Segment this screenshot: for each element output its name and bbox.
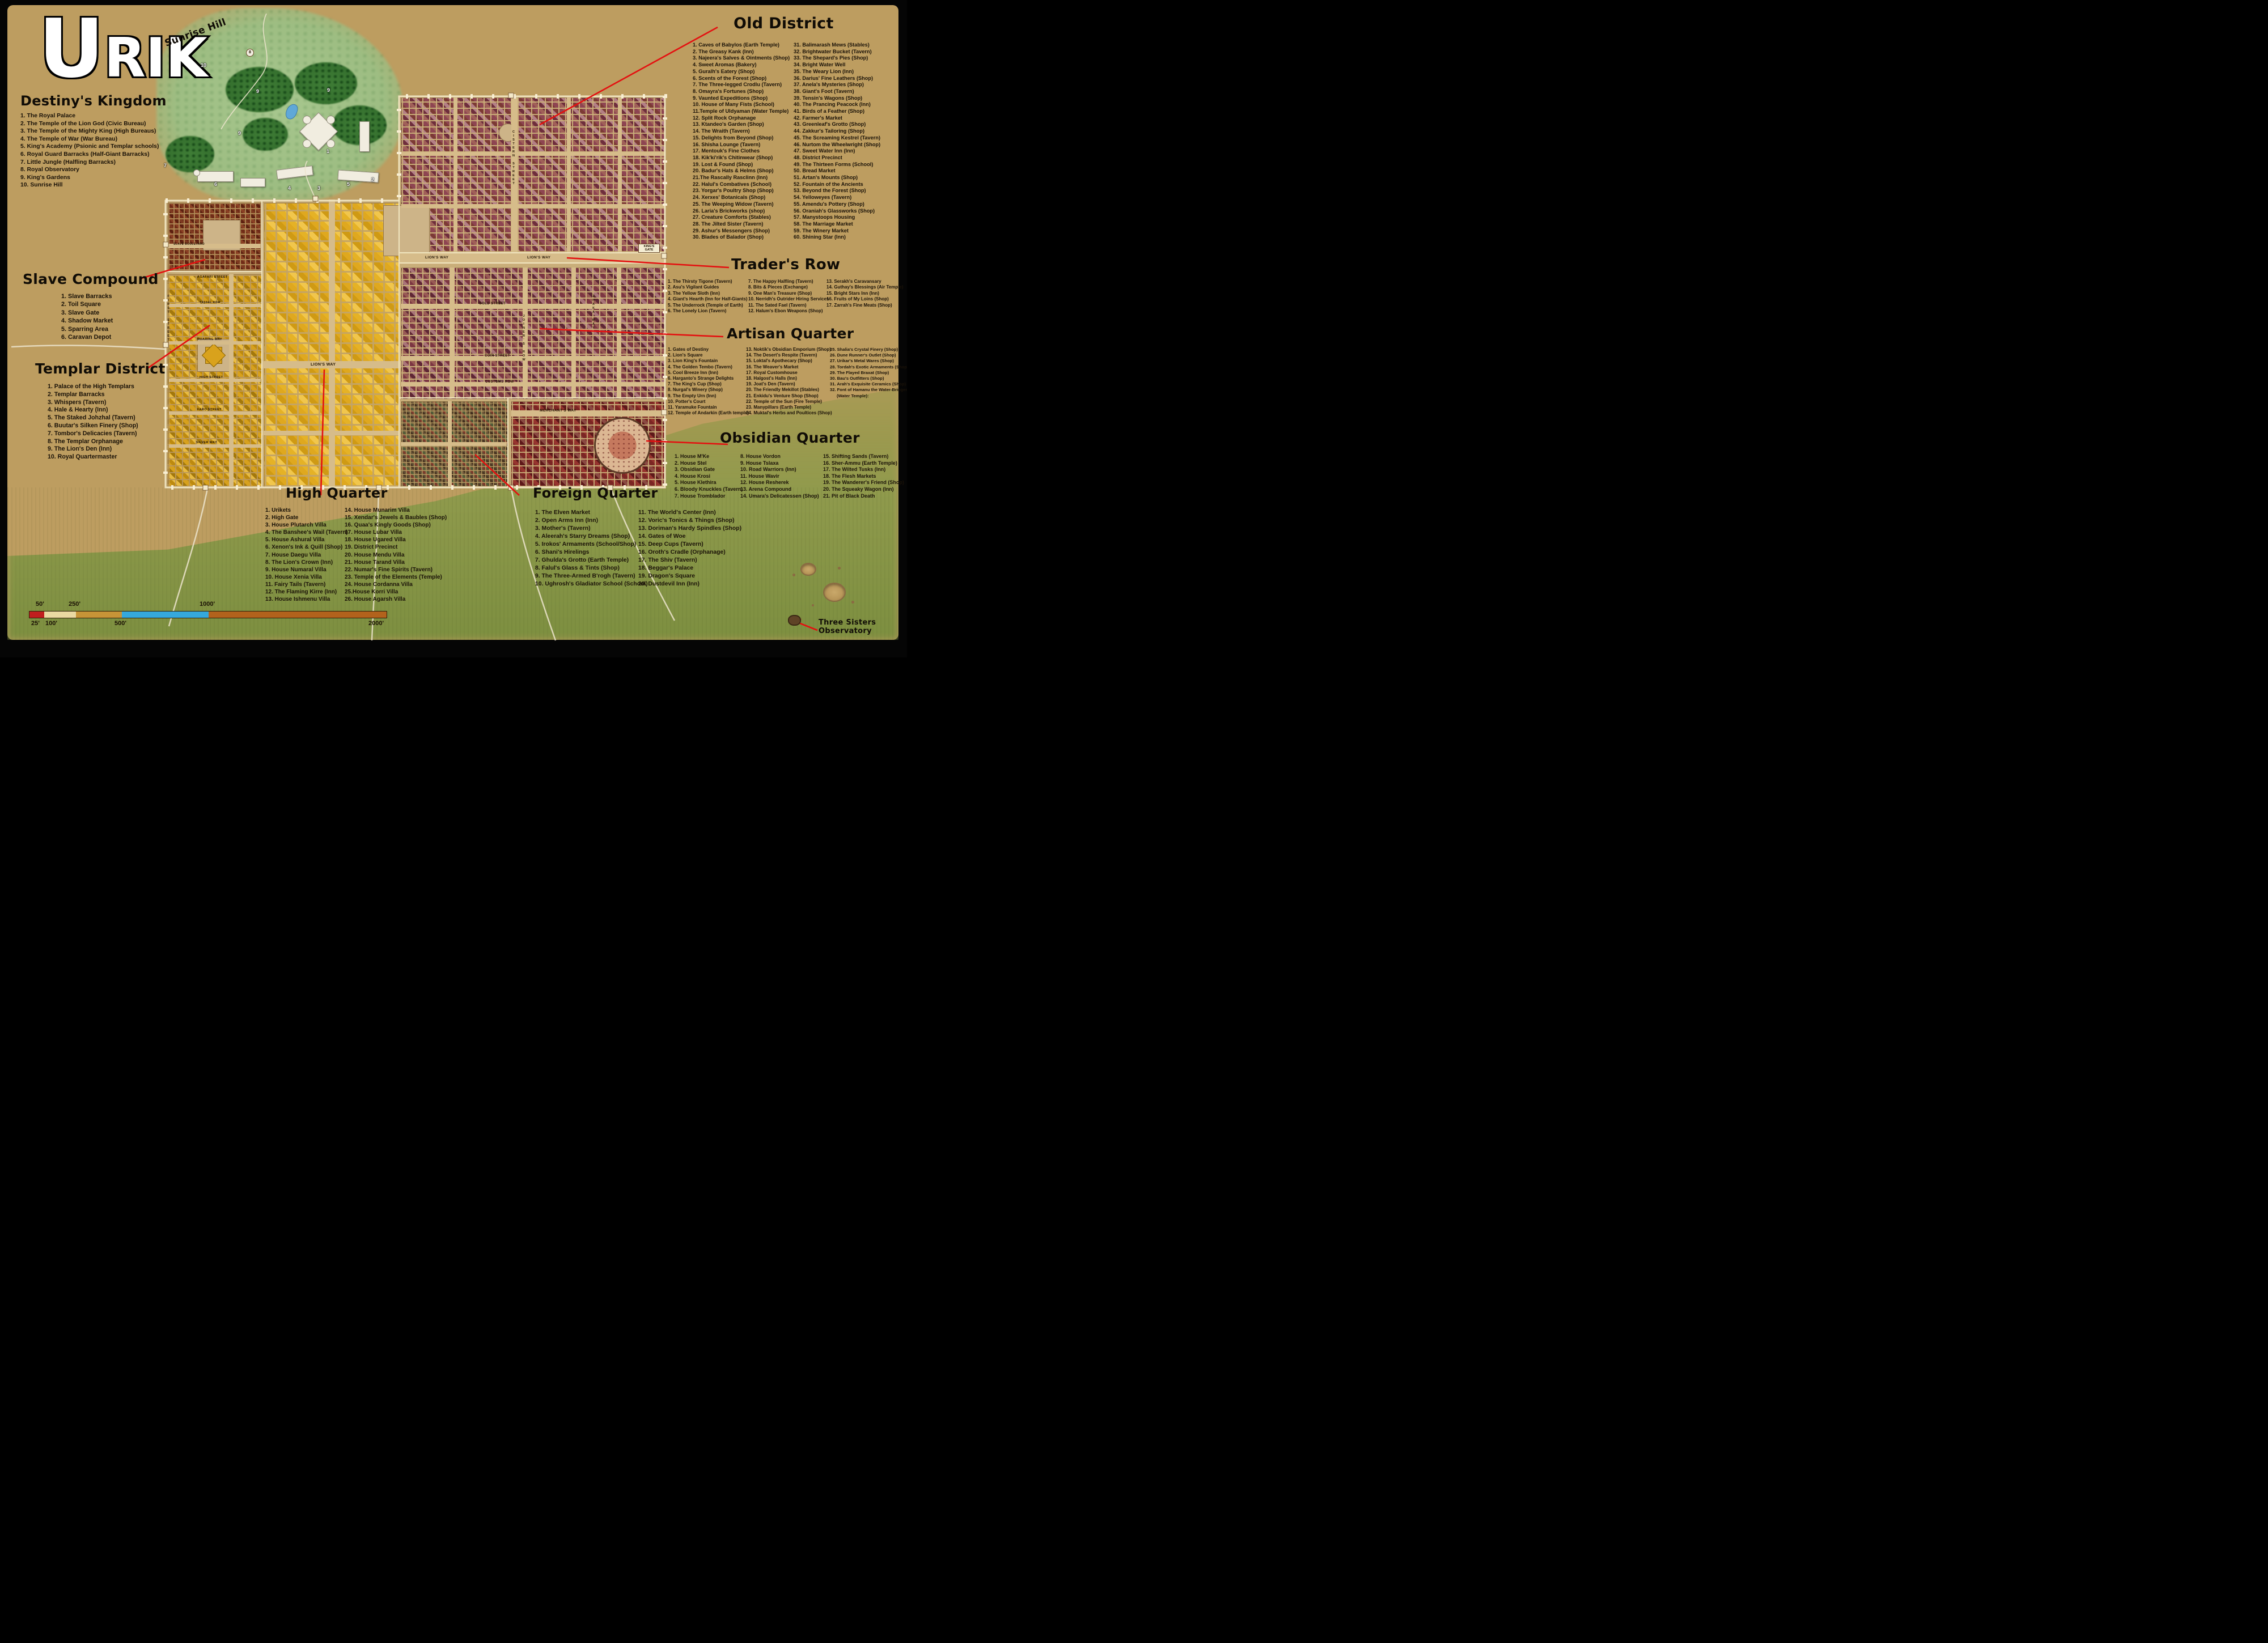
legend-item: 17. House Lubar Villa	[345, 529, 447, 536]
legend-item: 10. Road Warriors (Inn)	[740, 466, 819, 473]
legend-item: 22. Halul's Combatives (School)	[693, 181, 790, 188]
legend-item: 10. Nerridh's Outrider Hiring Services	[748, 296, 829, 302]
barracks-tower	[193, 169, 200, 176]
legend-item: 11.Temple of Uldyaman (Water Temple)	[693, 108, 790, 115]
legend-item: 12. Temple of Andarkin (Earth temple)	[668, 410, 749, 416]
legend-item: 20. The Friendly Mekillot (Stables)	[746, 387, 832, 393]
legend-item: 5. Irokos' Armaments (School/Shop)	[535, 541, 648, 549]
legend-item: 8. The Lion's Crown (Inn)	[265, 559, 348, 566]
scale-label-25: 25'	[31, 620, 40, 627]
legend-item: 58. The Marriage Market	[794, 221, 880, 228]
legend-item: 7. The Happy Halfling (Tavern)	[748, 279, 829, 285]
legend-item: 50. Bread Market	[794, 168, 880, 175]
arena-compound	[594, 417, 651, 474]
legend-item: 8. Bits & Pieces (Exchange)	[748, 285, 829, 290]
legend-item: 4. Aleerah's Starry Dreams (Shop)	[535, 533, 648, 541]
legend-item: 29. The Flayed Braxat (Shop)	[837, 370, 907, 376]
legend-item: 4. The Temple of War (War Bureau)	[20, 135, 159, 143]
legend-item: 48. District Precinct	[794, 155, 880, 162]
legend-item: 13. House Ishmenu Villa	[265, 596, 348, 603]
legend-item: 31. Arah's Exquisite Ceramics (Shop)	[837, 381, 907, 387]
district-foreign-quarter	[401, 401, 508, 487]
legend-item: 7. The Three-legged Crodlu (Tavern)	[693, 82, 790, 88]
legend-item: 1. Caves of Babylos (Earth Temple)	[693, 42, 790, 49]
three-sisters-label: Three Sisters Observatory	[819, 619, 881, 636]
legend-item: 8. Nurgal's Winery (Shop)	[668, 387, 749, 393]
palace-tower	[327, 116, 335, 124]
legend-item: 2. The Greasy Kank (Inn)	[693, 49, 790, 56]
legend-item: 25. Shalia's Crystal Finery (Shop)	[837, 347, 907, 353]
legend-item: 56. Oraniah's Glassworks (Shop)	[794, 208, 880, 215]
legend-item: 21. Enkidu's Venture Shop (Shop)	[746, 393, 832, 399]
legend-item: 9. House Tslaxa	[740, 460, 819, 467]
legend-item: 12. Voric's Tonics & Things (Shop)	[638, 517, 741, 525]
legend-item: 60. Shining Star (Inn)	[794, 234, 880, 241]
street-merchants-way: MERCHANT'S WAY	[540, 409, 576, 413]
legend-item: 21. House Tarand Villa	[345, 559, 447, 566]
legend-item: 5. The Staked Johzhal (Tavern)	[48, 414, 138, 422]
legend-item: 4. Hale & Hearty (Inn)	[48, 406, 138, 414]
legend-item: 19. Lost & Found (Shop)	[693, 162, 790, 168]
legend-item: 52. Fountain of the Ancients	[794, 181, 880, 188]
legend-item: 13. Serakh's Caravansary	[826, 279, 904, 285]
legend-item: 36. Darius' Fine Leathers (Shop)	[794, 75, 880, 82]
legend-item: 3. Najeera's Salves & Ointments (Shop)	[693, 55, 790, 62]
legend-artisan-quarter: Artisan Quarter 1. Gates of Destiny2. Li…	[668, 325, 906, 416]
street-lions-way-east: LION'S WAY	[527, 256, 550, 260]
legend-item: 24. Xerxes' Botanicals (Shop)	[693, 194, 790, 201]
legend-item: 17. The Shiv (Tavern)	[638, 557, 741, 564]
royal-marker-8-observatory: 8	[246, 49, 254, 57]
legend-high-quarter: High Quarter 1. Urikets2. High Gate3. Ho…	[265, 485, 452, 607]
district-old	[401, 97, 666, 253]
legend-item: 30. Blades of Balador (Shop)	[693, 234, 790, 241]
legend-item: 9. House Numaral Villa	[265, 566, 348, 574]
royal-marker-9c: 9	[238, 130, 241, 136]
legend-item: 20. Dustdevil Inn (Inn)	[638, 580, 741, 588]
scale-label-1000: 1000'	[200, 601, 215, 608]
legend-item: 2. Toil Square	[61, 300, 113, 308]
legend-slave-compound: Slave Compound 1. Slave Barracks2. Toil …	[23, 271, 170, 345]
legend-item: 18. Halgost's Halls (Inn)	[746, 376, 832, 381]
legend-item: 1. Gates of Destiny	[668, 347, 749, 353]
legend-item: 51. Artan's Mounts (Shop)	[794, 175, 880, 181]
legend-item: 12. House Resherek	[740, 479, 819, 486]
legend-item: 4. The Banshee's Wail (Tavern)	[265, 529, 348, 536]
legend-item: 6. Shani's Hirelings	[535, 549, 648, 557]
legend-item: 26. Laria's Brickworks (shop)	[693, 208, 790, 215]
legend-item: 54. Yelloweyes (Tavern)	[794, 194, 880, 201]
legend-title-high-quarter: High Quarter	[286, 485, 452, 501]
legend-item: 2. High Gate	[265, 514, 348, 521]
legend-item: 17. Royal Customhouse	[746, 370, 832, 376]
legend-item: 55. Amendu's Pottery (Shop)	[794, 201, 880, 208]
legend-item: 7. Little Jungle (Halfling Barracks)	[20, 159, 159, 167]
legend-item: 9. King's Gardens	[20, 174, 159, 182]
kings-gate-label: KING'S GATE	[638, 244, 660, 253]
legend-item: 10. Sunrise Hill	[20, 181, 159, 189]
street-gold: GOLD STREET	[479, 302, 506, 305]
royal-marker-5: 5	[347, 181, 350, 187]
legend-item: 9. Vaunted Expeditions (Shop)	[693, 95, 790, 102]
legend-item: 11. Fairy Tails (Tavern)	[265, 581, 348, 588]
street-silver-way: SILVER WAY	[196, 441, 217, 444]
legend-item: 12. The Flaming Kirre (Inn)	[265, 588, 348, 596]
street-faro: FARO STREET	[197, 408, 222, 411]
legend-item: 4. Sweet Aromas (Bakery)	[693, 62, 790, 69]
legend-item: 46. Nurtom the Wheelwright (Shop)	[794, 142, 880, 148]
legend-item: 1. The Elven Market	[535, 509, 648, 517]
street-joiners-row: JOINER'S ROW	[522, 315, 525, 362]
scale-seg-red	[29, 612, 44, 618]
tree-cluster	[295, 62, 357, 104]
legend-item: 8. House Vordon	[740, 453, 819, 460]
legend-item: 3. The Temple of the Mighty King (High B…	[20, 128, 159, 135]
legend-item: 35. The Weary Lion (Inn)	[794, 69, 880, 75]
legend-item: 10. House Xenia Villa	[265, 574, 348, 581]
street-lions-way-west: LION'S WAY	[311, 363, 336, 367]
legend-foreign-quarter: Foreign Quarter 1. The Elven Market2. Op…	[527, 485, 743, 593]
street-agafari: AGAFARI STREET	[197, 275, 228, 279]
legend-item: 6. Caravan Depot	[61, 333, 113, 341]
legend-item: 4. House Krosi	[675, 473, 743, 480]
legend-item: 9. The Three-Armed B'rogh (Tavern)	[535, 572, 648, 580]
barracks-building	[197, 171, 234, 182]
royal-marker-9: 9	[256, 88, 259, 94]
legend-item: 6. Royal Guard Barracks (Half-Giant Barr…	[20, 151, 159, 159]
legend-item: 1. The Royal Palace	[20, 112, 159, 120]
crater	[800, 563, 816, 576]
royal-marker-4: 4	[288, 185, 291, 191]
legend-title-templar-district: Templar District	[35, 360, 183, 377]
legend-item: 16. Sher-Ammu (Earth Temple)	[823, 460, 904, 467]
observatory-site	[788, 615, 801, 626]
legend-item: 23. Manypillars (Earth Temple)	[746, 405, 832, 410]
urik-city-map: URIK Sunrise Hill 1 2 3 4 5 6 7 8 9 9 9 …	[0, 0, 907, 657]
legend-item: 42. Farmer's Market	[794, 115, 880, 122]
legend-item: 8. Falul's Glass & Tints (Shop)	[535, 564, 648, 572]
legend-item: 40. The Prancing Peacock (Inn)	[794, 101, 880, 108]
legend-item: 33. The Shepard's Pies (Shop)	[794, 55, 880, 62]
map-title: URIK	[39, 12, 207, 85]
legend-item: 24. Muktal's Herbs and Poultices (Shop)	[746, 410, 832, 416]
legend-item: 7. Ghulda's Grotto (Earth Temple)	[535, 557, 648, 564]
legend-item: 5. Guralh's Eatery (Shop)	[693, 69, 790, 75]
legend-item: 3. Obsidian Gate	[675, 466, 743, 473]
legend-item: 21. Pit of Black Death	[823, 493, 904, 500]
legend-item: 29. Ashur's Messengers (Shop)	[693, 228, 790, 235]
legend-item: 7. Tombor's Delicacies (Tavern)	[48, 430, 138, 438]
legend-item: 5. Sparring Area	[61, 325, 113, 333]
scale-seg-blue	[122, 612, 209, 618]
legend-item: 2. Open Arms Inn (Inn)	[535, 517, 648, 525]
legend-title-foreign-quarter: Foreign Quarter	[533, 485, 743, 501]
legend-item: 34. Bright Water Well	[794, 62, 880, 69]
tree-cluster	[226, 67, 294, 112]
legend-item: 19. Dragon's Square	[638, 572, 741, 580]
legend-title-destinys-kingdom: Destiny's Kingdom	[20, 93, 190, 109]
toil-square-plaza	[203, 220, 240, 251]
legend-item: 1. Palace of the High Templars	[48, 383, 138, 391]
legend-item: 7. The King's Cup (Shop)	[668, 381, 749, 387]
crater-dot	[851, 601, 854, 604]
royal-marker-3: 3	[317, 185, 320, 191]
scale-label-100: 100'	[45, 620, 57, 627]
legend-item: 47. Sweet Water Inn (Inn)	[794, 148, 880, 155]
legend-item: 45. The Screaming Kestrel (Tavern)	[794, 135, 880, 142]
bazaar-plaza	[383, 205, 430, 256]
legend-item: 17. Mentouk's Fine Clothes	[693, 148, 790, 155]
legend-item: 5. House Ashural Villa	[265, 536, 348, 544]
legend-item: 6. The Lonely Lion (Tavern)	[668, 308, 748, 314]
legend-item: 10. Royal Quartermaster	[48, 453, 138, 461]
legend-item: 3. Whispers (Tavern)	[48, 399, 138, 407]
street-customs-row: CUSTOMS ROW	[485, 380, 514, 384]
legend-item: 4. Shadow Market	[61, 317, 113, 325]
legend-item: 4. Giant's Hearth (Inn for Half-Giants)	[668, 296, 748, 302]
legend-item: 15. Delights from Beyond (Shop)	[693, 135, 790, 142]
street-roaring-way: ROARING WAY	[197, 338, 222, 341]
scale-seg-gold	[76, 612, 122, 618]
legend-item: 10. House of Many Fists (School)	[693, 101, 790, 108]
legend-item: 16. Oroth's Cradle (Orphanage)	[638, 549, 741, 557]
crater-dot	[838, 567, 841, 570]
legend-item: 3. Lion King's Fountain	[668, 358, 749, 364]
legend-title-artisan-quarter: Artisan Quarter	[727, 325, 906, 342]
legend-item: 13. Noktik's Obsidian Emporium (Shop)	[746, 347, 832, 353]
scale-label-500: 500'	[115, 620, 126, 627]
legend-item: 8. Royal Observatory	[20, 166, 159, 174]
crater-dot	[792, 574, 795, 576]
street-high: HIGH STREET	[200, 376, 223, 379]
legend-item: 2. The Temple of the Lion God (Civic Bur…	[20, 120, 159, 128]
legend-item: 5. Cool Breeze Inn (Inn)	[668, 370, 749, 376]
street-coin: COIN STREET	[485, 354, 510, 358]
legend-item: 28. Tordah's Exotic Armaments (Shop)	[837, 364, 907, 370]
legend-item: 18. House Ugared Villa	[345, 536, 447, 544]
legend-item: 22. Numar's Fine Spirits (Tavern)	[345, 566, 447, 574]
legend-item: 6. Scents of the Forest (Shop)	[693, 75, 790, 82]
street-slave-blvd: SLAVE BOULEVARD	[173, 243, 205, 246]
legend-templar-district: Templar District 1. Palace of the High T…	[35, 360, 183, 462]
legend-item: 15. Shifting Sands (Tavern)	[823, 453, 904, 460]
legend-item: 9. One Man's Treasure (Shop)	[748, 291, 829, 296]
legend-item: 18. The Flesh Markets	[823, 473, 904, 480]
street-zhaka-way: ZHAKA WAY	[592, 295, 595, 330]
legend-item: 6. Xenon's Ink & Quill (Shop)	[265, 544, 348, 551]
legend-item: 11. House Wavir	[740, 473, 819, 480]
legend-item: 20. Badur's Hats & Helms (Shop)	[693, 168, 790, 175]
scale-bar	[29, 611, 387, 618]
legend-item: 14. Gates of Woe	[638, 533, 741, 541]
legend-item: 19. The Wanderer's Friend (Shop)	[823, 479, 904, 486]
legend-item: 17. Zarrah's Fine Meats (Shop)	[826, 303, 904, 308]
palace-tower	[327, 139, 335, 148]
legend-item: 26. Dune Runner's Outlet (Shop)	[837, 353, 907, 358]
legend-item: 16. Quaa's Kingly Goods (Shop)	[345, 521, 447, 529]
street-cistern: CISTERN STREET	[512, 130, 515, 186]
legend-item: 9. The Empty Urn (Inn)	[668, 393, 749, 399]
legend-item: 16. Fruits of My Loins (Shop)	[826, 296, 904, 302]
legend-item: 3. Slave Gate	[61, 309, 113, 317]
legend-item: 15. Deep Cups (Tavern)	[638, 541, 741, 549]
legend-item: 13. Ktandeo's Garden (Shop)	[693, 121, 790, 128]
legend-item: 11. Yaramuke Fountain	[668, 405, 749, 410]
legend-item: 14. House Munarim Villa	[345, 507, 447, 514]
legend-title-old-district: Old District	[734, 15, 897, 32]
crater	[823, 583, 846, 602]
legend-item: 25. The Weeping Widow (Tavern)	[693, 201, 790, 208]
legend-item: 15. Bright Stars Inn (Inn)	[826, 291, 904, 296]
legend-item: 13. Arena Compound	[740, 486, 819, 493]
legend-item: 32. Brightwater Bucket (Tavern)	[794, 49, 880, 56]
legend-title-slave-compound: Slave Compound	[23, 271, 170, 287]
legend-item: 18. Kik'ki'rik's Chitinwear (Shop)	[693, 155, 790, 162]
legend-item: 39. Tensin's Wagons (Shop)	[794, 95, 880, 102]
legend-item: 5. The Underrock (Temple of Earth)	[668, 303, 748, 308]
legend-item: 27. Creature Comforts (Stables)	[693, 214, 790, 221]
scale-seg-brown	[209, 612, 387, 618]
palace-tower	[303, 139, 311, 148]
legend-item: 14. Guthay's Blessings (Air Temple)	[826, 285, 904, 290]
legend-item: 20. House Mendu Villa	[345, 551, 447, 559]
legend-item: 37. Anela's Mysteries (Shop)	[794, 82, 880, 88]
legend-item: 12. Halum's Ebon Weapons (Shop)	[748, 308, 829, 314]
legend-item: 53. Beyond the Forest (Shop)	[794, 188, 880, 194]
legend-item: 16. The Weaver's Market	[746, 364, 832, 370]
legend-item: 17. The Wilted Tusks (Inn)	[823, 466, 904, 473]
legend-item: 27. Urikar's Metal Wares (Shop)	[837, 358, 907, 364]
royal-marker-2: 2	[371, 177, 374, 182]
legend-item: 2. Asu's Vigilant Guides	[668, 285, 748, 290]
legend-item: 15. Xendar's Jewels & Baubles (Shop)	[345, 514, 447, 521]
legend-item: 7. House Daegu Villa	[265, 551, 348, 559]
legend-item: 28. The Jilted Sister (Tavern)	[693, 221, 790, 228]
legend-item: 23. Yorgar's Poultry Shop (Shop)	[693, 188, 790, 194]
legend-item: 20. The Squeaky Wagon (Inn)	[823, 486, 904, 493]
legend-traders-row: Trader's Row 1. The Thirsty Tigone (Tave…	[668, 256, 906, 319]
legend-item: 57. Manystoops Housing	[794, 214, 880, 221]
legend-old-district: Old District 1. Caves of Babylos (Earth …	[693, 15, 897, 247]
legend-item: 4. The Golden Tembo (Tavern)	[668, 364, 749, 370]
temple-building	[359, 121, 370, 152]
district-traders-artisan	[401, 268, 666, 399]
legend-item: 44. Zakkur's Tailoring (Shop)	[794, 128, 880, 135]
royal-marker-9b: 9	[327, 87, 330, 93]
barracks-building	[240, 178, 265, 187]
legend-item: 59. The Winery Market	[794, 228, 880, 235]
legend-item: 23. Temple of the Elements (Temple)	[345, 574, 447, 581]
legend-item: 11. The Sated Fael (Tavern)	[748, 303, 829, 308]
legend-item: 31. Balimarash Mews (Stables)	[794, 42, 880, 49]
legend-item: 49. The Thirteen Forms (School)	[794, 162, 880, 168]
scale-label-50: 50'	[36, 601, 44, 608]
legend-item: 19. District Precinct	[345, 544, 447, 551]
legend-item: 6. Harganto's Strange Delights	[668, 376, 749, 381]
legend-item: 26. House Agarsh Villa	[345, 596, 447, 603]
palace-tower	[303, 116, 311, 124]
street-lions-way-mid: LION'S WAY	[425, 256, 448, 260]
legend-item: 22. Temple of the Sun (Fire Temple)	[746, 399, 832, 405]
legend-item: 5. King's Academy (Psionic and Templar s…	[20, 143, 159, 151]
legend-item: 32. Font of Hamanu the Water-Bringer (Wa…	[837, 387, 907, 398]
legend-title-obsidian-quarter: Obsidian Quarter	[720, 430, 906, 446]
legend-item: 30. Bau's Outfitters (Shop)	[837, 376, 907, 381]
legend-item: 21.The Rascally Rasclinn (Inn)	[693, 175, 790, 181]
royal-marker-6: 6	[214, 181, 217, 187]
royal-marker-10: 10	[201, 62, 206, 68]
legend-item: 12. Split Rock Orphanage	[693, 115, 790, 122]
legend-item: 3. The Yellow Sloth (Inn)	[668, 291, 748, 296]
legend-item: 2. Lion's Square	[668, 353, 749, 358]
legend-title-traders-row: Trader's Row	[731, 256, 906, 273]
scale-seg-cream	[44, 612, 76, 618]
legend-item: 16. Shisha Lounge (Tavern)	[693, 142, 790, 148]
scale-label-250: 250'	[69, 601, 80, 608]
legend-destinys-kingdom: Destiny's Kingdom 1. The Royal Palace2. …	[20, 93, 190, 195]
scale-label-2000: 2000'	[368, 620, 384, 627]
legend-item: 1. Slave Barracks	[61, 292, 113, 300]
legend-item: 2. House Stel	[675, 460, 743, 467]
legend-item: 1. Urikets	[265, 507, 348, 514]
legend-item: 15. Loktal's Apothecary (Shop)	[746, 358, 832, 364]
legend-item: 24. House Cordanna Villa	[345, 581, 447, 588]
legend-item: 38. Giant's Foot (Tavern)	[794, 88, 880, 95]
legend-item: 13. Doriman's Hardy Spindles (Shop)	[638, 525, 741, 533]
tree-cluster	[243, 118, 288, 151]
legend-item: 1. House M'Ke	[675, 453, 743, 460]
legend-item: 3. House Plutarch Villa	[265, 521, 348, 529]
legend-item: 14. Umara's Delicatessen (Shop)	[740, 493, 819, 500]
legend-item: 8. Omayra's Fortunes (Shop)	[693, 88, 790, 95]
legend-item: 18. Beggar's Palace	[638, 564, 741, 572]
legend-item: 2. Templar Barracks	[48, 391, 138, 399]
legend-item: 11. The World's Center (Inn)	[638, 509, 741, 517]
legend-item: 6. Buutar's Silken Finery (Shop)	[48, 422, 138, 430]
legend-item: 3. Mother's (Tavern)	[535, 525, 648, 533]
legend-item: 10. Ughrosh's Gladiator School (School)	[535, 580, 648, 588]
legend-item: 19. Joat's Den (Tavern)	[746, 381, 832, 387]
crater-dot	[812, 604, 814, 606]
legend-item: 8. The Templar Orphanage	[48, 438, 138, 446]
legend-item: 41. Birds of a Feather (Shop)	[794, 108, 880, 115]
legend-item: 1. The Thirsty Tigone (Tavern)	[668, 279, 748, 285]
legend-item: 9. The Lion's Den (Inn)	[48, 445, 138, 453]
legend-item: 14. The Desert's Respite (Tavern)	[746, 353, 832, 358]
street-tassel-row: TASSEL ROW	[200, 301, 221, 304]
legend-item: 14. The Wraith (Tavern)	[693, 128, 790, 135]
legend-item: 10. Potter's Court	[668, 399, 749, 405]
district-high-quarter	[264, 203, 399, 487]
royal-marker-1: 1	[327, 148, 329, 154]
legend-item: 43. Greenleaf's Grotto (Shop)	[794, 121, 880, 128]
legend-item: 25.House Korri Villa	[345, 588, 447, 596]
